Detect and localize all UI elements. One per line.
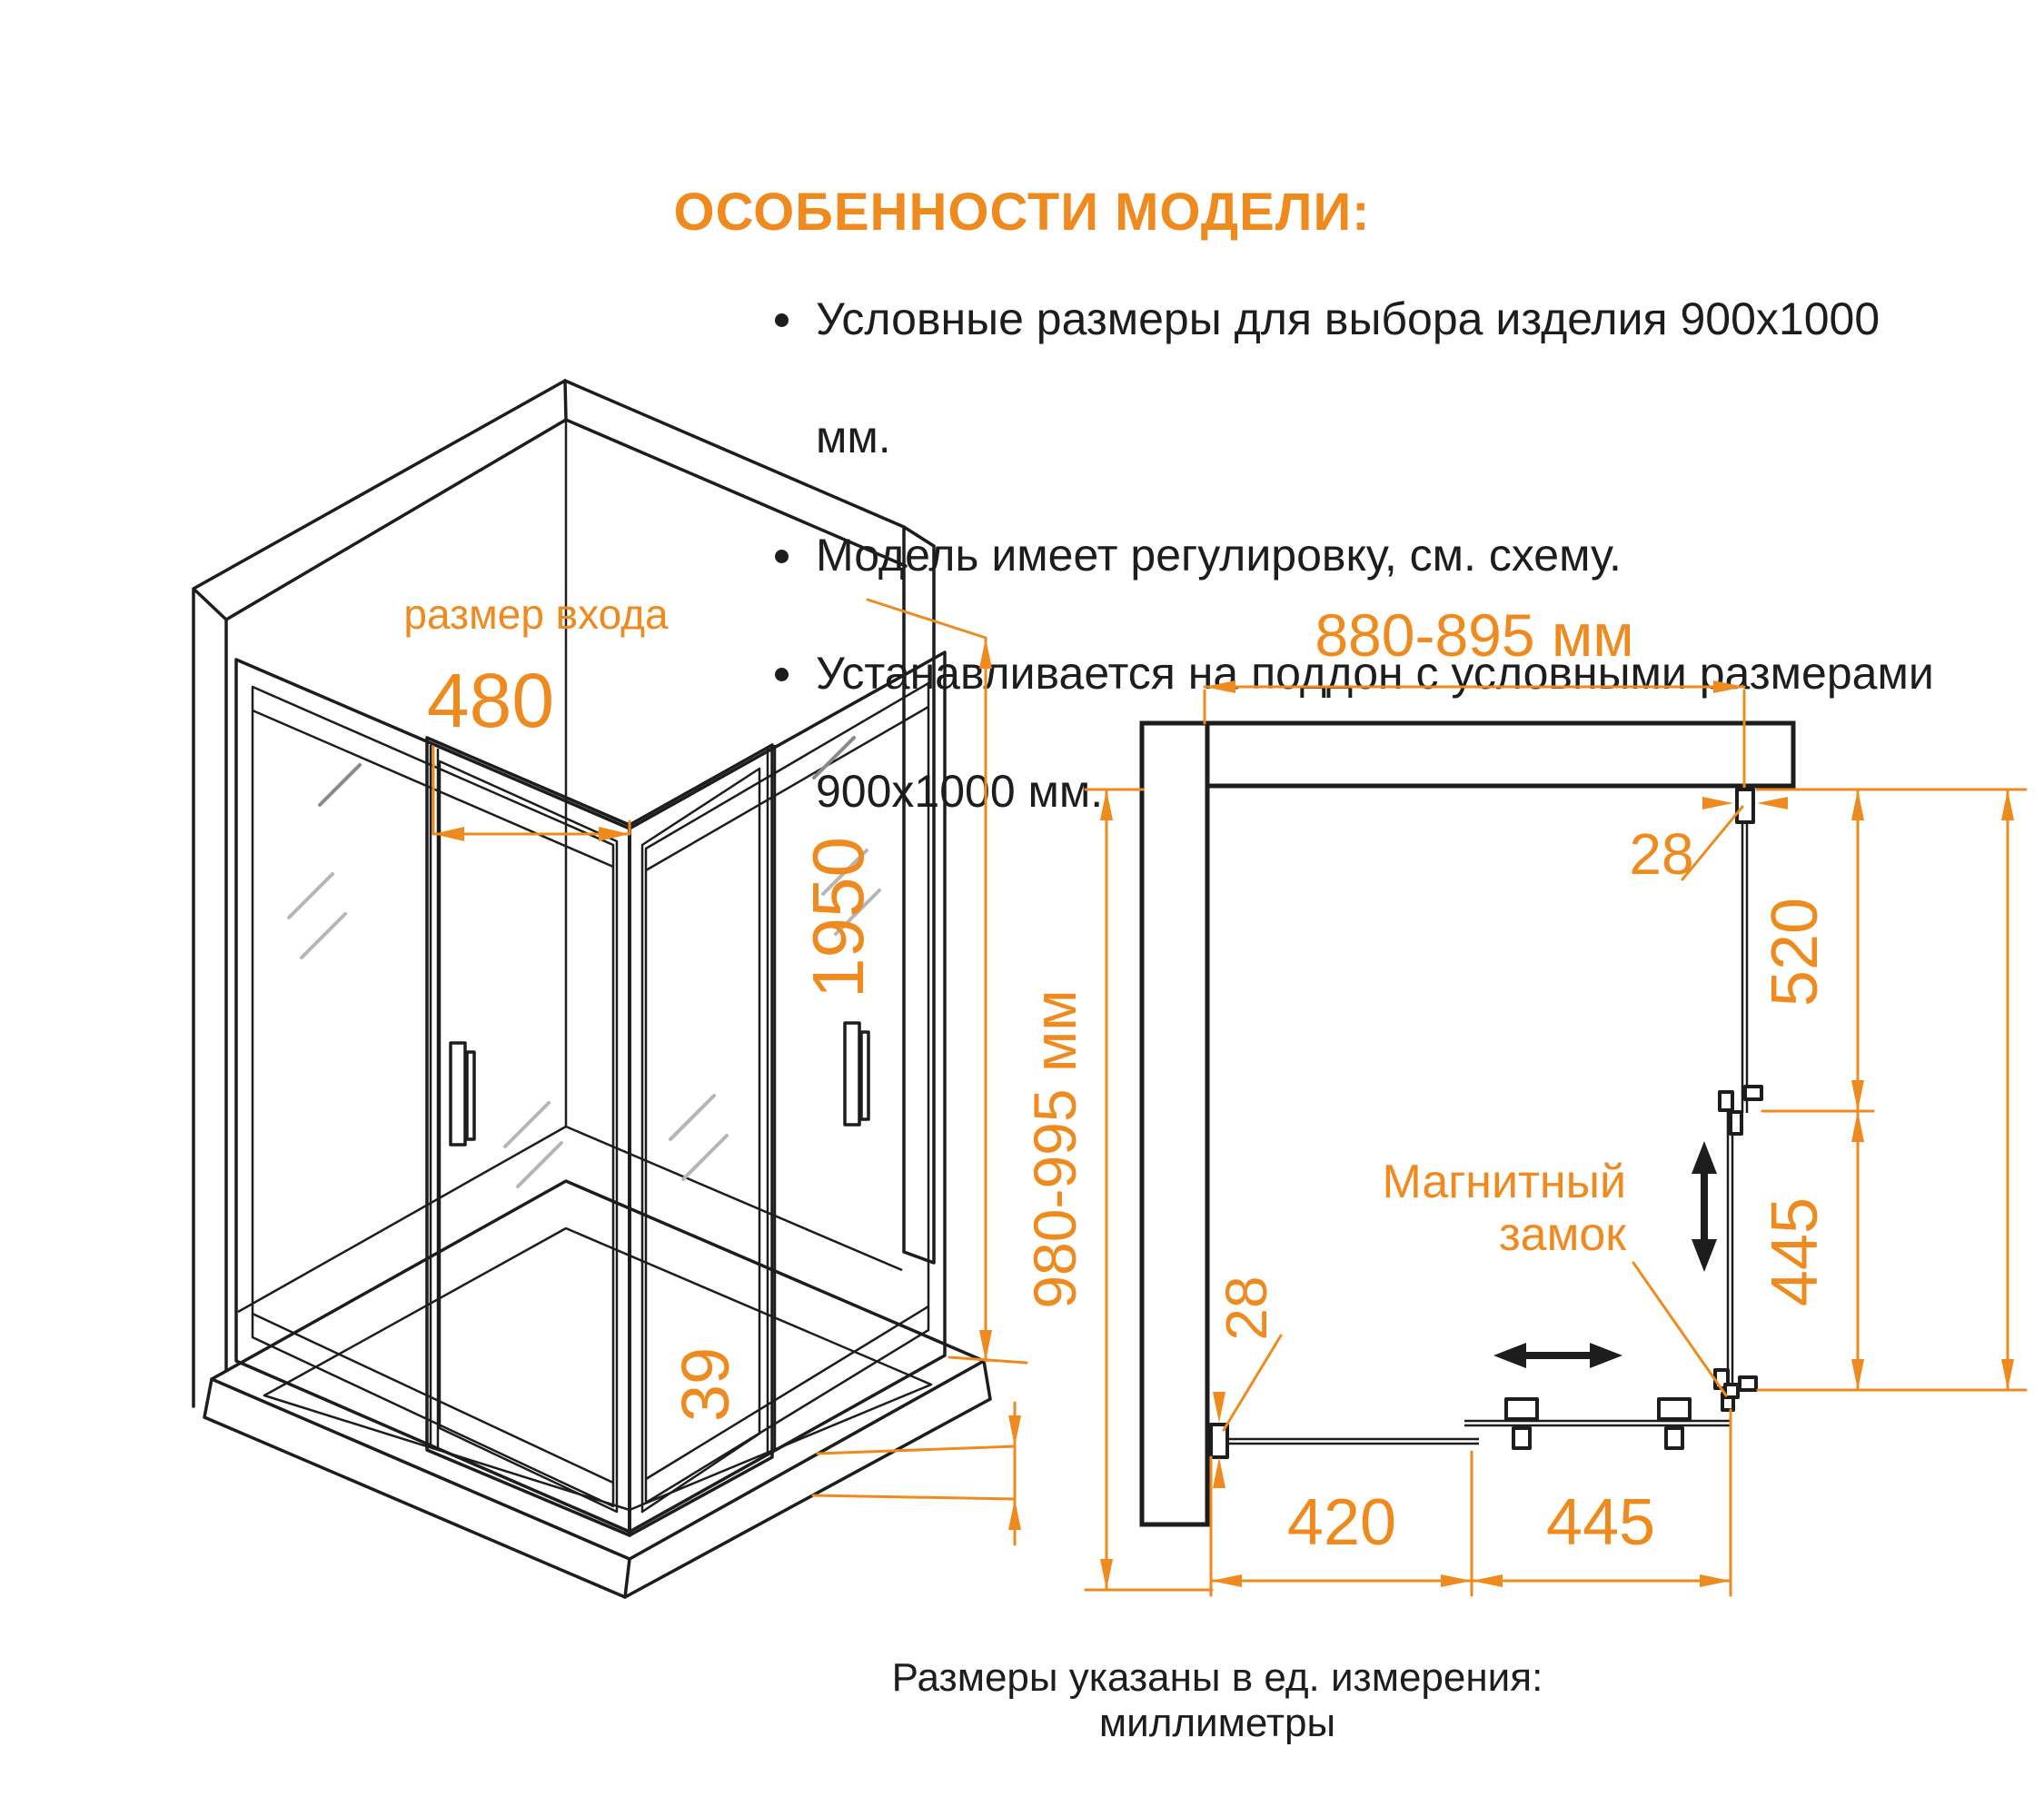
plan-drawing: 880-895 мм 980-995 мм [1021, 601, 2026, 1595]
plan-dim-bottom: 420 445 [1211, 1410, 1731, 1595]
door-handle-right [845, 1023, 868, 1125]
units-note: Размеры указаны в ед. измерения: миллиме… [799, 1655, 1635, 1746]
plan-dim-right-fixed: 520 [1757, 789, 2026, 1111]
magnetic-lock-label-line1: Магнитный [1382, 1156, 1626, 1208]
door-handle-left [451, 1043, 474, 1145]
slide-arrow-horizontal [1493, 1343, 1622, 1368]
plan-right-assembly [1715, 789, 1761, 1410]
technical-drawing: размер входа 480 1950 39 [0, 0, 2044, 1817]
slide-arrow-vertical [1692, 1141, 1717, 1272]
magnetic-lock-callout: Магнитный замок [1382, 1156, 1726, 1395]
dimension-420: 420 [1287, 1486, 1396, 1559]
dimension-1950: 1950 [798, 837, 878, 998]
wall-profile-top [1737, 789, 1753, 822]
plan-bottom-assembly [1211, 1385, 1738, 1457]
iso-tray [204, 1181, 990, 1597]
dimension-445-right: 445 [1759, 1197, 1831, 1306]
plan-dim-profile-top: 28 [1629, 797, 1788, 887]
plan-dim-right-door: 445 [1758, 1111, 2026, 1390]
page: ОСОБЕННОСТИ МОДЕЛИ: Условные размеры для… [0, 0, 2044, 1817]
plan-dim-right-overall [2001, 789, 2014, 1390]
dimension-480: 480 [427, 658, 554, 743]
plan-wall-left [1142, 723, 1207, 1524]
iso-drawing: размер входа 480 1950 39 [193, 381, 1027, 1597]
dimension-520: 520 [1759, 898, 1831, 1007]
entrance-label: размер входа [403, 591, 669, 638]
dimension-28-bottom: 28 [1214, 1276, 1279, 1340]
dimension-880-895: 880-895 мм [1315, 601, 1633, 669]
dimension-980-995: 980-995 мм [1021, 989, 1088, 1308]
plan-wall-top [1142, 723, 1793, 786]
dimension-39: 39 [668, 1347, 743, 1422]
magnetic-lock-label-line2: замок [1499, 1208, 1626, 1261]
dimension-445-bottom: 445 [1546, 1486, 1655, 1559]
